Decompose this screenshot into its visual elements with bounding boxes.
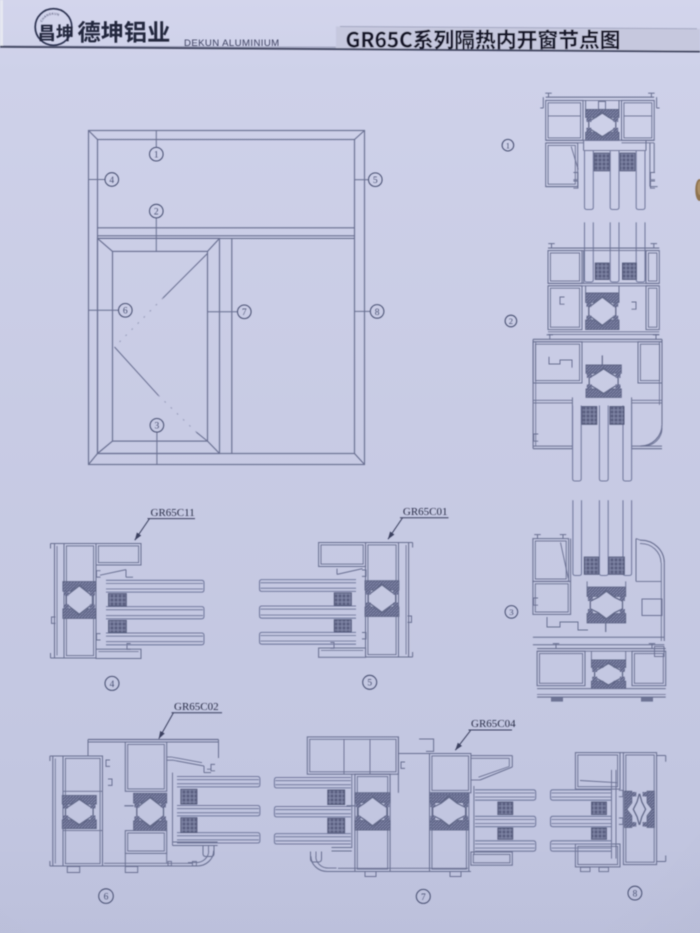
- svg-text:7: 7: [421, 893, 426, 903]
- svg-text:4: 4: [110, 680, 115, 690]
- svg-text:6: 6: [104, 892, 109, 903]
- svg-text:DEKUN ALUMINIUM: DEKUN ALUMINIUM: [184, 38, 280, 49]
- svg-text:1: 1: [506, 140, 510, 150]
- svg-text:8: 8: [633, 889, 638, 899]
- svg-text:3: 3: [509, 607, 514, 617]
- svg-text:7: 7: [242, 308, 247, 318]
- svg-text:GR65C11: GR65C11: [151, 507, 195, 519]
- svg-text:2: 2: [154, 208, 159, 218]
- svg-text:5: 5: [367, 679, 372, 689]
- svg-text:2: 2: [509, 316, 513, 326]
- svg-text:5: 5: [373, 176, 378, 186]
- svg-text:4: 4: [109, 176, 114, 186]
- svg-text:GR65C04: GR65C04: [471, 718, 516, 730]
- svg-text:6: 6: [123, 307, 128, 317]
- svg-text:8: 8: [375, 308, 380, 318]
- svg-text:3: 3: [155, 422, 160, 432]
- svg-text:1: 1: [154, 151, 159, 161]
- svg-text:GR65C01: GR65C01: [403, 506, 448, 518]
- svg-text:GR65C02: GR65C02: [174, 701, 219, 713]
